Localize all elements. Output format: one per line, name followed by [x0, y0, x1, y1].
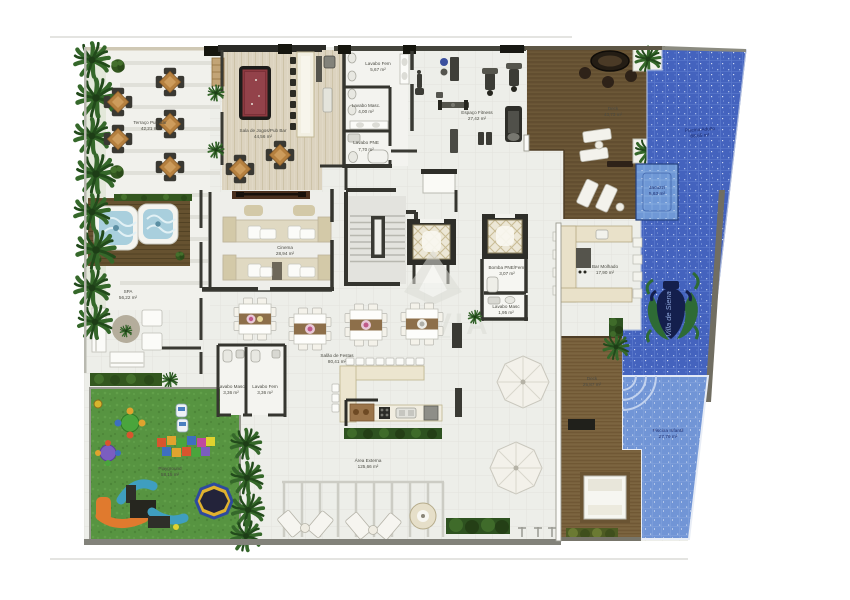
svg-text:42,21 m²: 42,21 m² [141, 126, 160, 131]
svg-text:Terraço Pub Bar: Terraço Pub Bar [133, 120, 167, 125]
svg-text:Playground: Playground [158, 466, 182, 471]
svg-text:Villa de Siena: Villa de Siena [664, 291, 673, 337]
svg-text:Lavabo Masc.: Lavabo Masc. [352, 103, 381, 108]
svg-text:56,22 m²: 56,22 m² [119, 295, 138, 300]
svg-text:25,87 m²: 25,87 m² [583, 382, 602, 387]
svg-text:Cinema: Cinema [277, 245, 293, 250]
svg-text:Lavabo Fem: Lavabo Fem [365, 61, 391, 66]
svg-text:3,36 m²: 3,36 m² [257, 390, 273, 395]
svg-text:Deck: Deck [608, 106, 619, 111]
svg-text:Piscina Infantil: Piscina Infantil [653, 428, 684, 434]
svg-text:Jacuzzi: Jacuzzi [649, 185, 665, 191]
svg-text:4,00 m²: 4,00 m² [358, 109, 374, 114]
svg-text:80,41 m²: 80,41 m² [328, 359, 347, 364]
svg-text:Lavabo Fem: Lavabo Fem [252, 384, 278, 389]
svg-text:Sala de Jogos/Pub Bar: Sala de Jogos/Pub Bar [240, 128, 287, 133]
svg-text:7,70 m²: 7,70 m² [358, 147, 374, 152]
svg-text:44,56 m²: 44,56 m² [254, 134, 273, 139]
svg-text:1,95 m²: 1,95 m² [498, 310, 514, 315]
svg-text:58,15 m²: 58,15 m² [161, 472, 180, 477]
svg-text:3,07 m²: 3,07 m² [499, 271, 515, 276]
svg-text:Lavabo Masc: Lavabo Masc [492, 304, 520, 309]
svg-text:Bomba PNE/Fem.: Bomba PNE/Fem. [488, 265, 525, 270]
svg-text:Espaço Fitness: Espaço Fitness [461, 110, 493, 115]
svg-text:Lavabo PNE: Lavabo PNE [353, 140, 379, 145]
svg-text:5,63 m²: 5,63 m² [649, 191, 666, 197]
svg-text:3,36 m²: 3,36 m² [223, 390, 239, 395]
svg-text:Deck: Deck [587, 376, 598, 381]
svg-text:Salão de Festas: Salão de Festas [320, 353, 354, 358]
svg-text:Lavabo Masc: Lavabo Masc [217, 384, 245, 389]
svg-text:27,42 m²: 27,42 m² [468, 116, 487, 121]
svg-text:17,90 m²: 17,90 m² [596, 270, 615, 275]
svg-text:43,73 m²: 43,73 m² [604, 112, 623, 117]
svg-text:SPA: SPA [124, 289, 134, 294]
svg-text:125,66 m²: 125,66 m² [358, 464, 379, 469]
svg-text:5,67 m²: 5,67 m² [370, 67, 386, 72]
svg-text:Bar Molhado: Bar Molhado [592, 264, 618, 269]
svg-text:Área Externa: Área Externa [355, 457, 382, 463]
svg-text:28,94 m²: 28,94 m² [276, 251, 295, 256]
svg-text:27,79 m²: 27,79 m² [659, 434, 678, 440]
